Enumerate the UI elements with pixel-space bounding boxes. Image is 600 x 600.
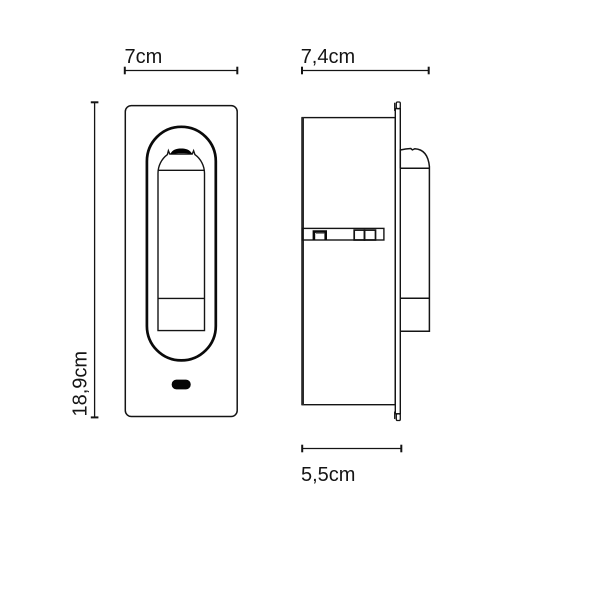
svg-text:5,5cm: 5,5cm [301,464,355,486]
svg-text:7cm: 7cm [125,46,163,68]
svg-text:7,4cm: 7,4cm [301,46,355,68]
svg-text:18,9cm: 18,9cm [70,351,92,417]
